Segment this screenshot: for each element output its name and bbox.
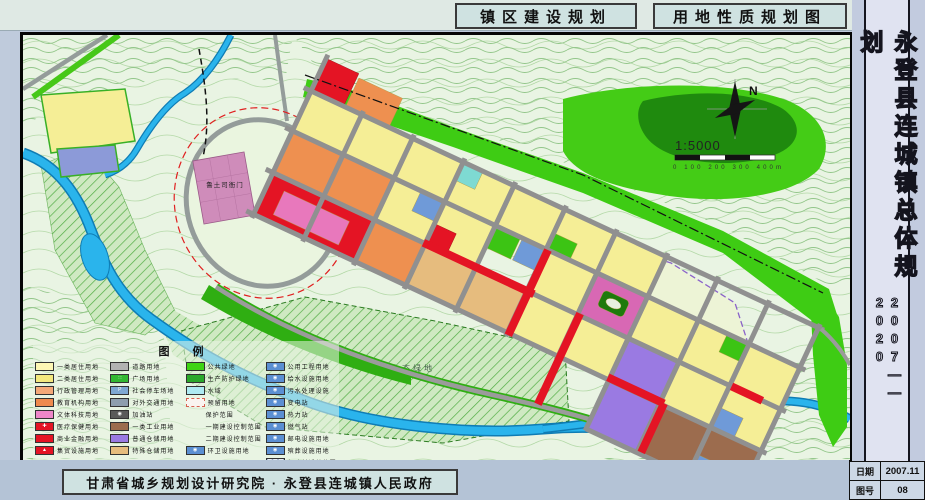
parking-icon: P — [118, 388, 121, 393]
legend-label: 变电站 — [288, 398, 309, 407]
utility-works-icon: ◉ — [266, 362, 285, 371]
legend-item: 二期建设控制范围 — [186, 433, 262, 443]
sheet-number-label: 图号 — [850, 481, 881, 499]
legend-item: ◉给水设施用地 — [266, 373, 337, 383]
legend-item: 对外交通用地 — [110, 397, 181, 407]
tusi-yamen-label: 鲁土司衙门 — [206, 180, 244, 189]
heating-station-icon: ◉ — [273, 412, 277, 417]
legend-label: 二类居住用地 — [57, 374, 99, 383]
legend-item: ◉污水处理设施 — [266, 385, 337, 395]
legend-label: 加油站 — [132, 410, 153, 419]
legend-item: ◉邮电设施用地 — [266, 433, 337, 443]
date-label: 日期 — [850, 462, 881, 480]
legend-swatch — [35, 362, 54, 371]
title-construction-plan: 镇区建设规划 — [455, 3, 637, 29]
legend-column: 一类居住用地二类居住用地行政管理用地教育机构用地文体科技用地✚医疗保健用地商业金… — [35, 361, 106, 463]
plan-years-vertical: 2007——2020 — [872, 295, 902, 461]
plaza-icon: ∷ — [110, 374, 129, 383]
legend-column: ◉公用工程用地◉给水设施用地◉污水处理设施◉变电站◉热力站◉燃气站◉邮电设施用地… — [266, 361, 337, 463]
legend-label: 一类居住用地 — [57, 362, 99, 371]
sidebar-title-column: 永登县连城镇总体规划 2007——2020 — [864, 0, 910, 461]
utility-works-icon: ◉ — [273, 364, 277, 369]
legend-swatch — [110, 398, 129, 407]
legend-item: P社会停车场地 — [110, 385, 181, 395]
sewage-treatment-icon: ◉ — [273, 388, 277, 393]
legend-label: 污水处理设施 — [288, 386, 330, 395]
sidebar: 永登县连城镇总体规划 2007——2020 — [852, 0, 925, 461]
legend-item: 教育机构用地 — [35, 397, 106, 407]
legend-title: 图 例 — [35, 343, 337, 359]
legend-label: 教育机构用地 — [57, 398, 99, 407]
sewage-treatment-icon: ◉ — [266, 386, 285, 395]
legend-label: 普通仓储用地 — [132, 434, 174, 443]
legend-item: 道路用地 — [110, 361, 181, 371]
legend-swatch — [35, 410, 54, 419]
legend-swatch — [186, 386, 205, 395]
legend-label: 燃气站 — [288, 422, 309, 431]
legend-item: 行政管理用地 — [35, 385, 106, 395]
legend-item: 公共绿地 — [186, 361, 262, 371]
substation-icon: ◉ — [273, 400, 277, 405]
residential-block — [41, 89, 135, 153]
legend-swatch — [110, 434, 129, 443]
sanitation-icon: ◉ — [186, 446, 205, 455]
legend-swatch — [35, 398, 54, 407]
legend-item: ▲集贸设施用地 — [35, 445, 106, 455]
funeral-icon: ◉ — [266, 446, 285, 455]
info-table: 日期 2007.11 图号 08 — [849, 461, 925, 500]
medical-cross-icon: ✚ — [35, 422, 54, 431]
legend-label: 热力站 — [288, 410, 309, 419]
sheet-number-row: 图号 08 — [850, 481, 924, 499]
legend-label: 邮电设施用地 — [288, 434, 330, 443]
legend-label: 殡葬设施用地 — [288, 446, 330, 455]
legend-swatch — [186, 398, 205, 407]
funeral-icon: ◉ — [273, 448, 277, 453]
legend-swatch — [110, 446, 129, 455]
legend-column: 道路用地∷广场用地P社会停车场地对外交通用地◉加油站一类工业用地普通仓储用地特殊… — [110, 361, 181, 463]
legend-item: ✚医疗保健用地 — [35, 421, 106, 431]
legend-item: 水域 — [186, 385, 262, 395]
fuel-station-icon: ◉ — [110, 410, 129, 419]
legend-item: ◉燃气站 — [266, 421, 337, 431]
legend-label: 社会停车场地 — [132, 386, 174, 395]
legend-label: 道路用地 — [132, 362, 160, 371]
planning-map: 生态绿地 鲁土司衙门 — [20, 32, 853, 463]
legend-column: 公共绿地生产防护绿地水域预留用地保护范围一期建设控制范围二期建设控制范围◉环卫设… — [186, 361, 262, 463]
north-label: N — [749, 84, 758, 98]
legend-item: 普通仓储用地 — [110, 433, 181, 443]
facility-block — [57, 145, 119, 177]
legend-item: 一类工业用地 — [110, 421, 181, 431]
legend-item: 文体科技用地 — [35, 409, 106, 419]
legend-swatch — [186, 362, 205, 371]
legend-item: ◉热力站 — [266, 409, 337, 419]
legend-item: ◉殡葬设施用地 — [266, 445, 337, 455]
water-supply-icon: ◉ — [273, 376, 277, 381]
legend-label: 集贸设施用地 — [57, 446, 99, 455]
post-telecom-icon: ◉ — [266, 434, 285, 443]
legend-item: 特殊仓储用地 — [110, 445, 181, 455]
substation-icon: ◉ — [266, 398, 285, 407]
legend-item: 商业金融用地 — [35, 433, 106, 443]
plan-title-vertical: 永登县连城镇总体规划 — [853, 30, 921, 289]
legend-label: 环卫设施用地 — [208, 446, 250, 455]
bottom-bar: 甘肃省城乡规划设计研究院 · 永登县连城镇人民政府 — [0, 460, 849, 500]
post-telecom-icon: ◉ — [273, 436, 277, 441]
legend-label: 一期建设控制范围 — [206, 422, 262, 431]
market-icon: ▲ — [35, 446, 54, 455]
top-strip: 镇区建设规划 用地性质规划图 — [0, 0, 852, 31]
legend-columns: 一类居住用地二类居住用地行政管理用地教育机构用地文体科技用地✚医疗保健用地商业金… — [35, 361, 337, 463]
legend-item: 一类居住用地 — [35, 361, 106, 371]
legend-label: 保护范围 — [206, 410, 234, 419]
legend-label: 对外交通用地 — [132, 398, 174, 407]
credit-box: 甘肃省城乡规划设计研究院 · 永登县连城镇人民政府 — [62, 469, 458, 495]
legend-item: ∷广场用地 — [110, 373, 181, 383]
market-icon: ▲ — [42, 448, 47, 453]
legend-label: 预留用地 — [208, 398, 236, 407]
legend-label: 行政管理用地 — [57, 386, 99, 395]
legend-item: ◉变电站 — [266, 397, 337, 407]
legend-swatch — [110, 422, 129, 431]
heating-station-icon: ◉ — [266, 410, 285, 419]
legend-label: 医疗保健用地 — [57, 422, 99, 431]
title-landuse-plan: 用地性质规划图 — [653, 3, 847, 29]
gas-station-icon: ◉ — [273, 424, 277, 429]
fuel-station-icon: ◉ — [118, 412, 122, 417]
legend-item: 生产防护绿地 — [186, 373, 262, 383]
plaza-icon: ∷ — [118, 376, 121, 381]
gas-station-icon: ◉ — [266, 422, 285, 431]
parking-icon: P — [110, 386, 129, 395]
legend-item: ◉公用工程用地 — [266, 361, 337, 371]
legend-label: 二期建设控制范围 — [206, 434, 262, 443]
water-supply-icon: ◉ — [266, 374, 285, 383]
legend-label: 生产防护绿地 — [208, 374, 250, 383]
legend-label: 一类工业用地 — [132, 422, 174, 431]
legend-swatch — [110, 362, 129, 371]
legend-label: 给水设施用地 — [288, 374, 330, 383]
legend-item: ◉环卫设施用地 — [186, 445, 262, 455]
date-value: 2007.11 — [881, 462, 924, 480]
legend-item: 预留用地 — [186, 397, 262, 407]
date-row: 日期 2007.11 — [850, 462, 924, 481]
legend-item: 二类居住用地 — [35, 373, 106, 383]
sanitation-icon: ◉ — [193, 448, 197, 453]
legend-swatch — [35, 386, 54, 395]
legend-label: 水域 — [208, 386, 222, 395]
legend-label: 广场用地 — [132, 374, 160, 383]
scale-label: 1:5000 — [675, 138, 721, 153]
medical-cross-icon: ✚ — [42, 424, 46, 429]
legend-swatch — [35, 434, 54, 443]
legend-label: 商业金融用地 — [57, 434, 99, 443]
legend-item: 保护范围 — [186, 409, 262, 419]
legend-swatch — [186, 374, 205, 383]
legend-swatch — [35, 374, 54, 383]
legend-item: 一期建设控制范围 — [186, 421, 262, 431]
legend-item: ◉加油站 — [110, 409, 181, 419]
legend-label: 公共绿地 — [208, 362, 236, 371]
legend-label: 特殊仓储用地 — [132, 446, 174, 455]
legend: 图 例 一类居住用地二类居住用地行政管理用地教育机构用地文体科技用地✚医疗保健用… — [33, 341, 339, 463]
sheet-number-value: 08 — [881, 481, 924, 499]
legend-label: 公用工程用地 — [288, 362, 330, 371]
legend-label: 文体科技用地 — [57, 410, 99, 419]
